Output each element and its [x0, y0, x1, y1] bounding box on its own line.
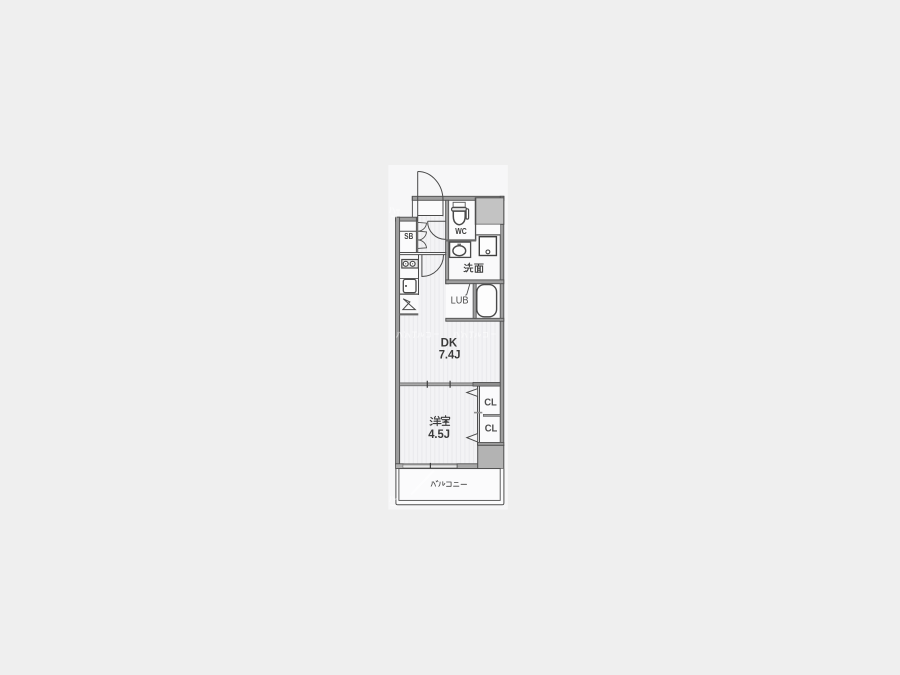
svg-text:CL: CL — [485, 423, 498, 435]
svg-text:7.4J: 7.4J — [439, 348, 461, 362]
svg-text:CL: CL — [484, 396, 497, 408]
svg-text:4.5J: 4.5J — [428, 427, 450, 441]
svg-text:LUB: LUB — [451, 296, 469, 307]
svg-text:SB: SB — [404, 232, 413, 241]
svg-text:WC: WC — [455, 226, 467, 236]
